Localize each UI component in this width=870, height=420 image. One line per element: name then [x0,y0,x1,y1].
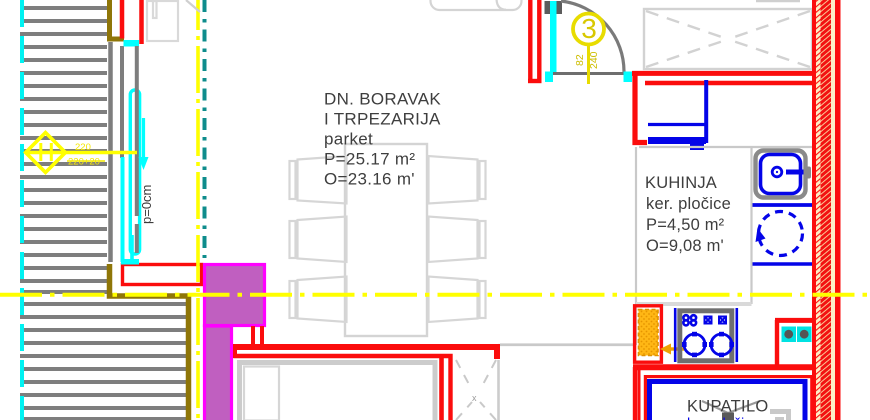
svg-text:ker. pločice: ker. pločice [687,417,760,420]
svg-text:220: 220 [75,142,91,153]
svg-text:O=9,08 m': O=9,08 m' [646,237,724,255]
svg-text:82: 82 [574,54,586,66]
svg-text:KUPATILO: KUPATILO [687,398,769,416]
svg-text:KUHINJA: KUHINJA [645,174,717,192]
svg-text:x: x [472,393,477,403]
svg-text:parket: parket [324,130,373,149]
svg-text:P=25.17 m²: P=25.17 m² [324,150,415,169]
svg-text:O=23.16 m': O=23.16 m' [324,170,415,189]
svg-text:I TRPEZARIJA: I TRPEZARIJA [324,110,441,129]
svg-text:3: 3 [581,13,597,44]
svg-text:p=0cm: p=0cm [139,185,154,224]
svg-text:240: 240 [588,51,600,69]
svg-text:220+20: 220+20 [68,157,100,168]
svg-text:DN. BORAVAK: DN. BORAVAK [324,90,441,109]
svg-text:ker. pločice: ker. pločice [646,195,731,213]
svg-text:P=4,50 m²: P=4,50 m² [646,216,725,234]
